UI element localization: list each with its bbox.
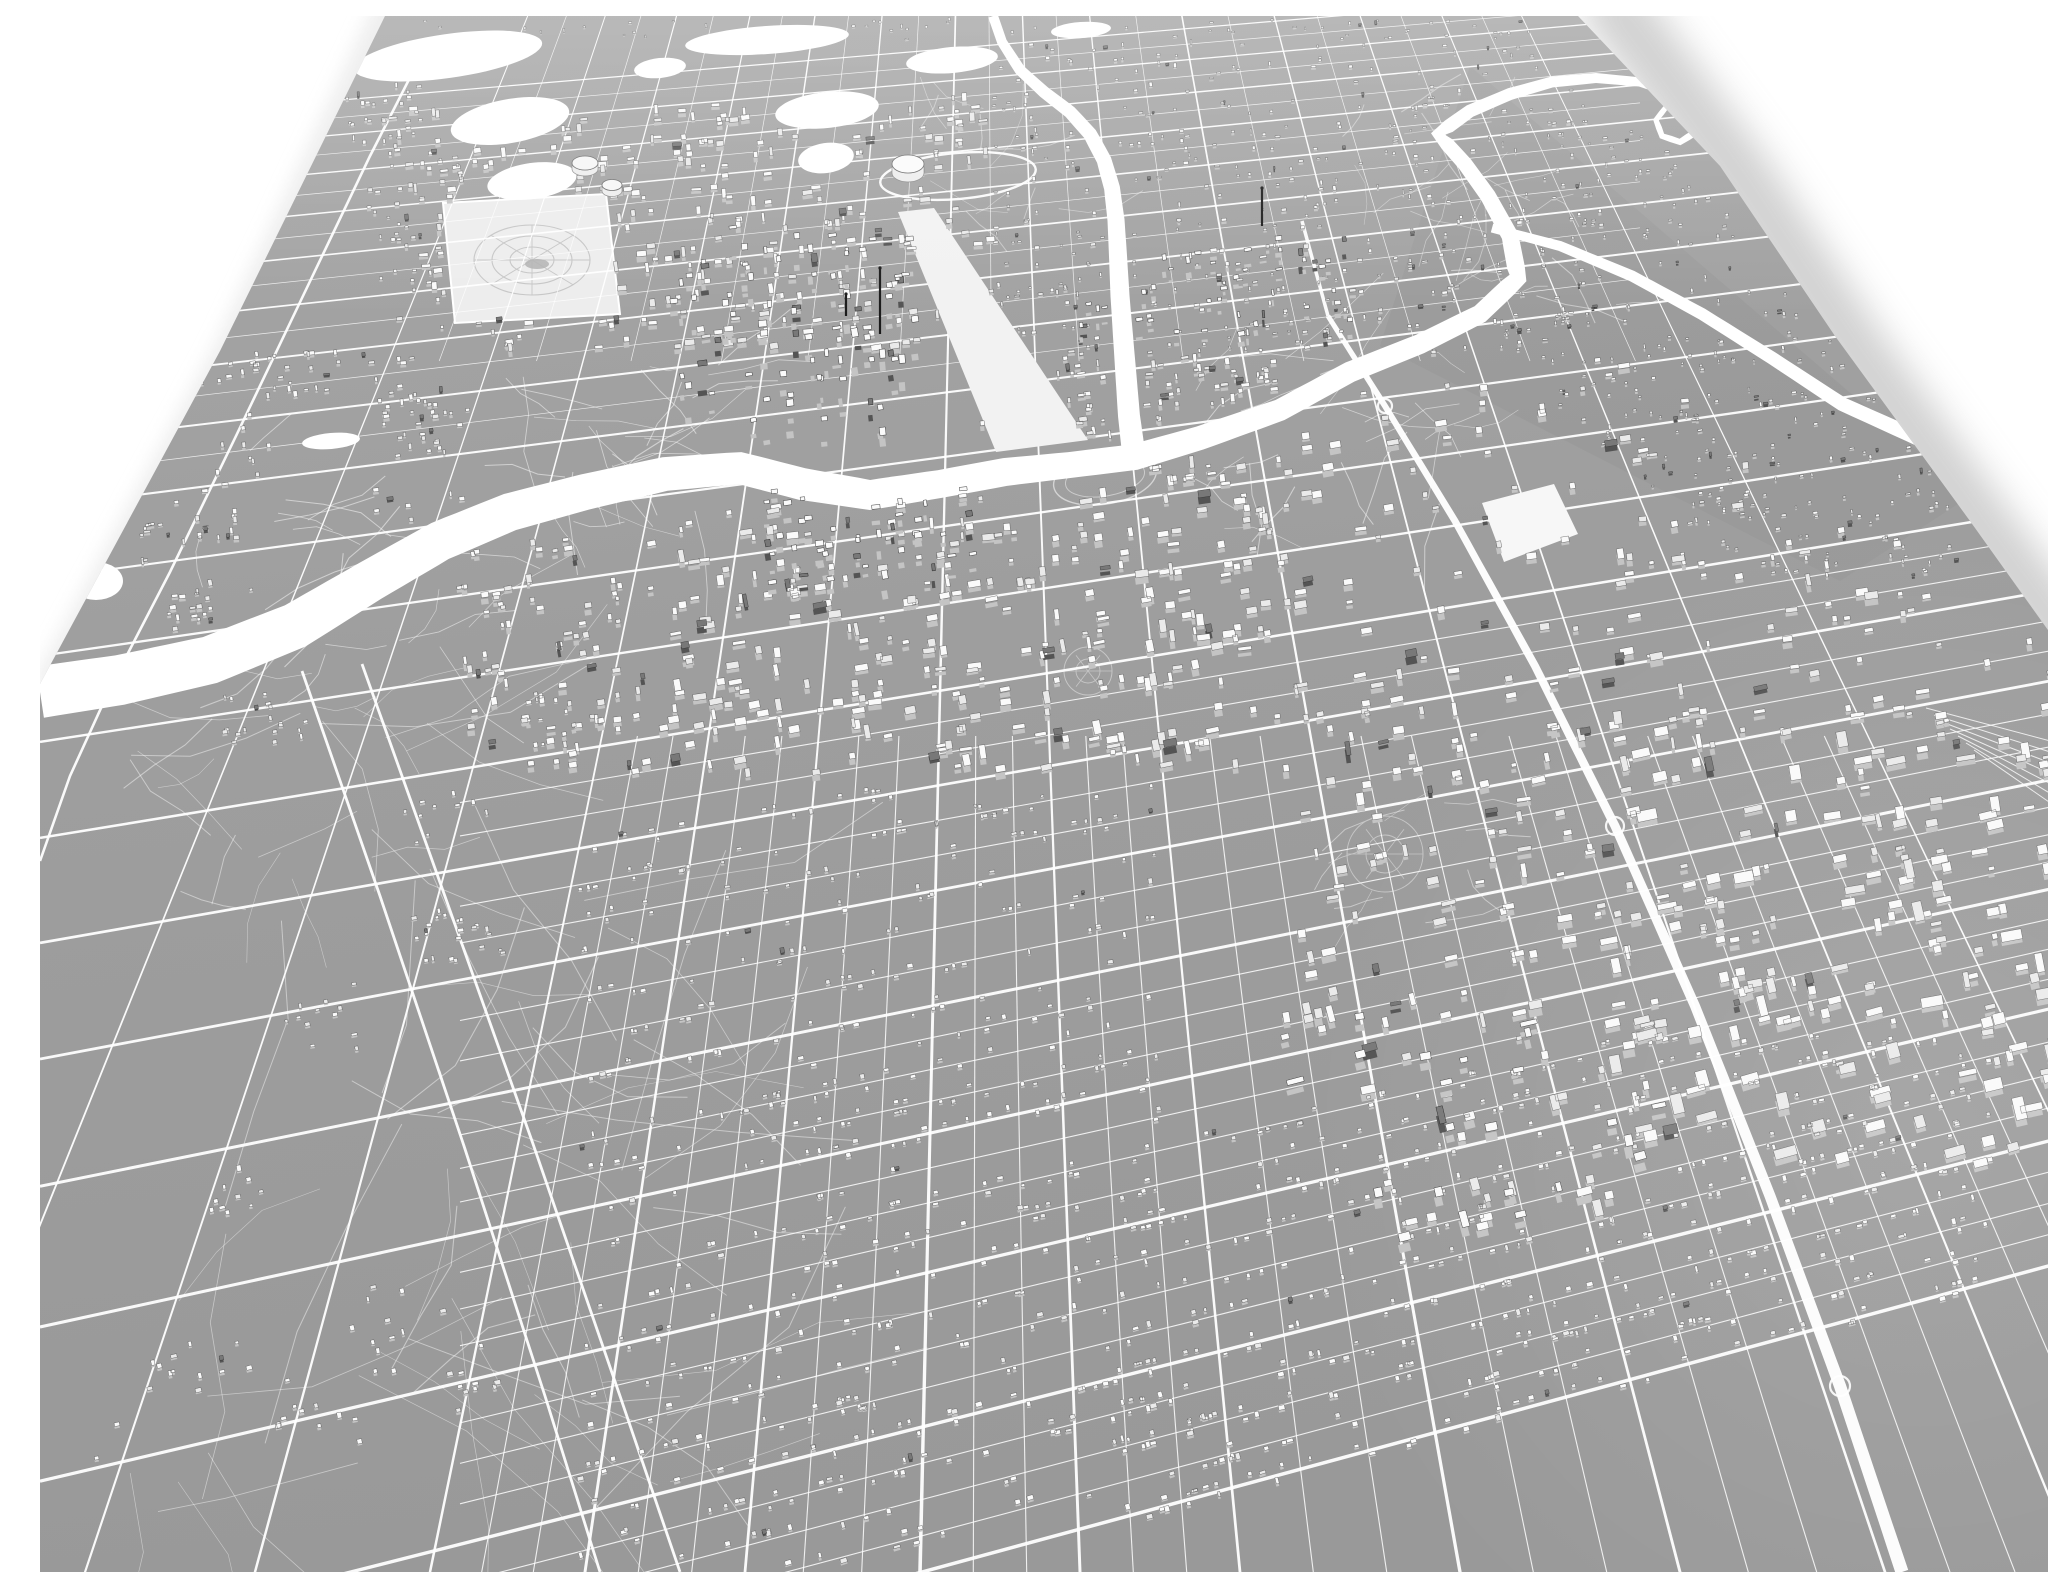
city-map-render	[40, 16, 2048, 1572]
city-3d-map-figure	[40, 16, 2048, 1572]
